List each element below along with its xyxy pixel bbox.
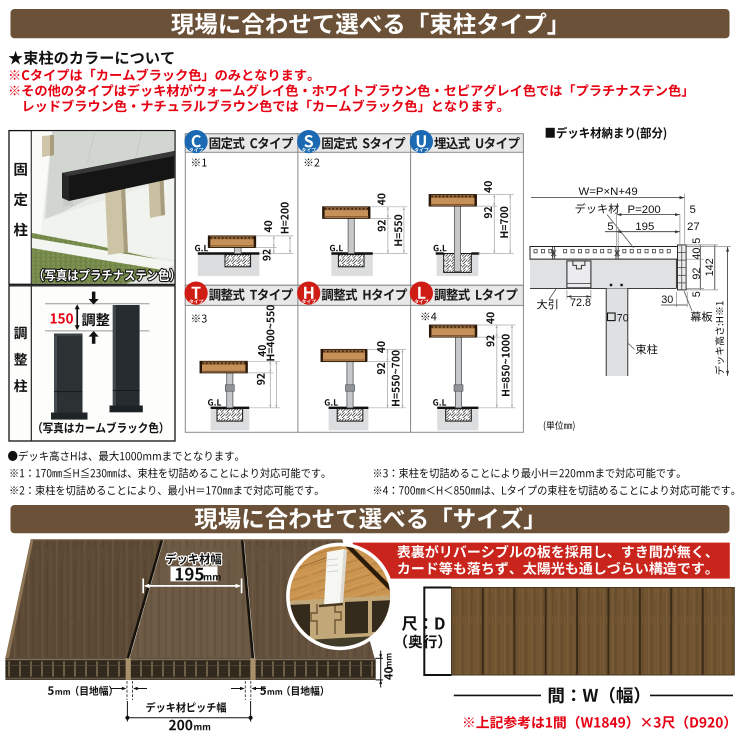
svg-text:72.8: 72.8 — [570, 297, 591, 309]
svg-text:30: 30 — [661, 294, 673, 306]
svg-text:92: 92 — [691, 268, 703, 280]
svg-text:40: 40 — [691, 248, 703, 260]
svg-text:195: 195 — [635, 221, 654, 233]
svg-text:5: 5 — [690, 204, 696, 216]
svg-text:70: 70 — [617, 312, 629, 324]
svg-text:27: 27 — [687, 221, 700, 233]
svg-text:5: 5 — [607, 221, 613, 233]
svg-text:W=P×N+49: W=P×N+49 — [579, 186, 638, 198]
svg-text:5: 5 — [691, 238, 703, 244]
svg-text:142: 142 — [704, 258, 716, 276]
svg-text:5: 5 — [691, 291, 703, 297]
svg-text:P=200: P=200 — [628, 204, 661, 216]
